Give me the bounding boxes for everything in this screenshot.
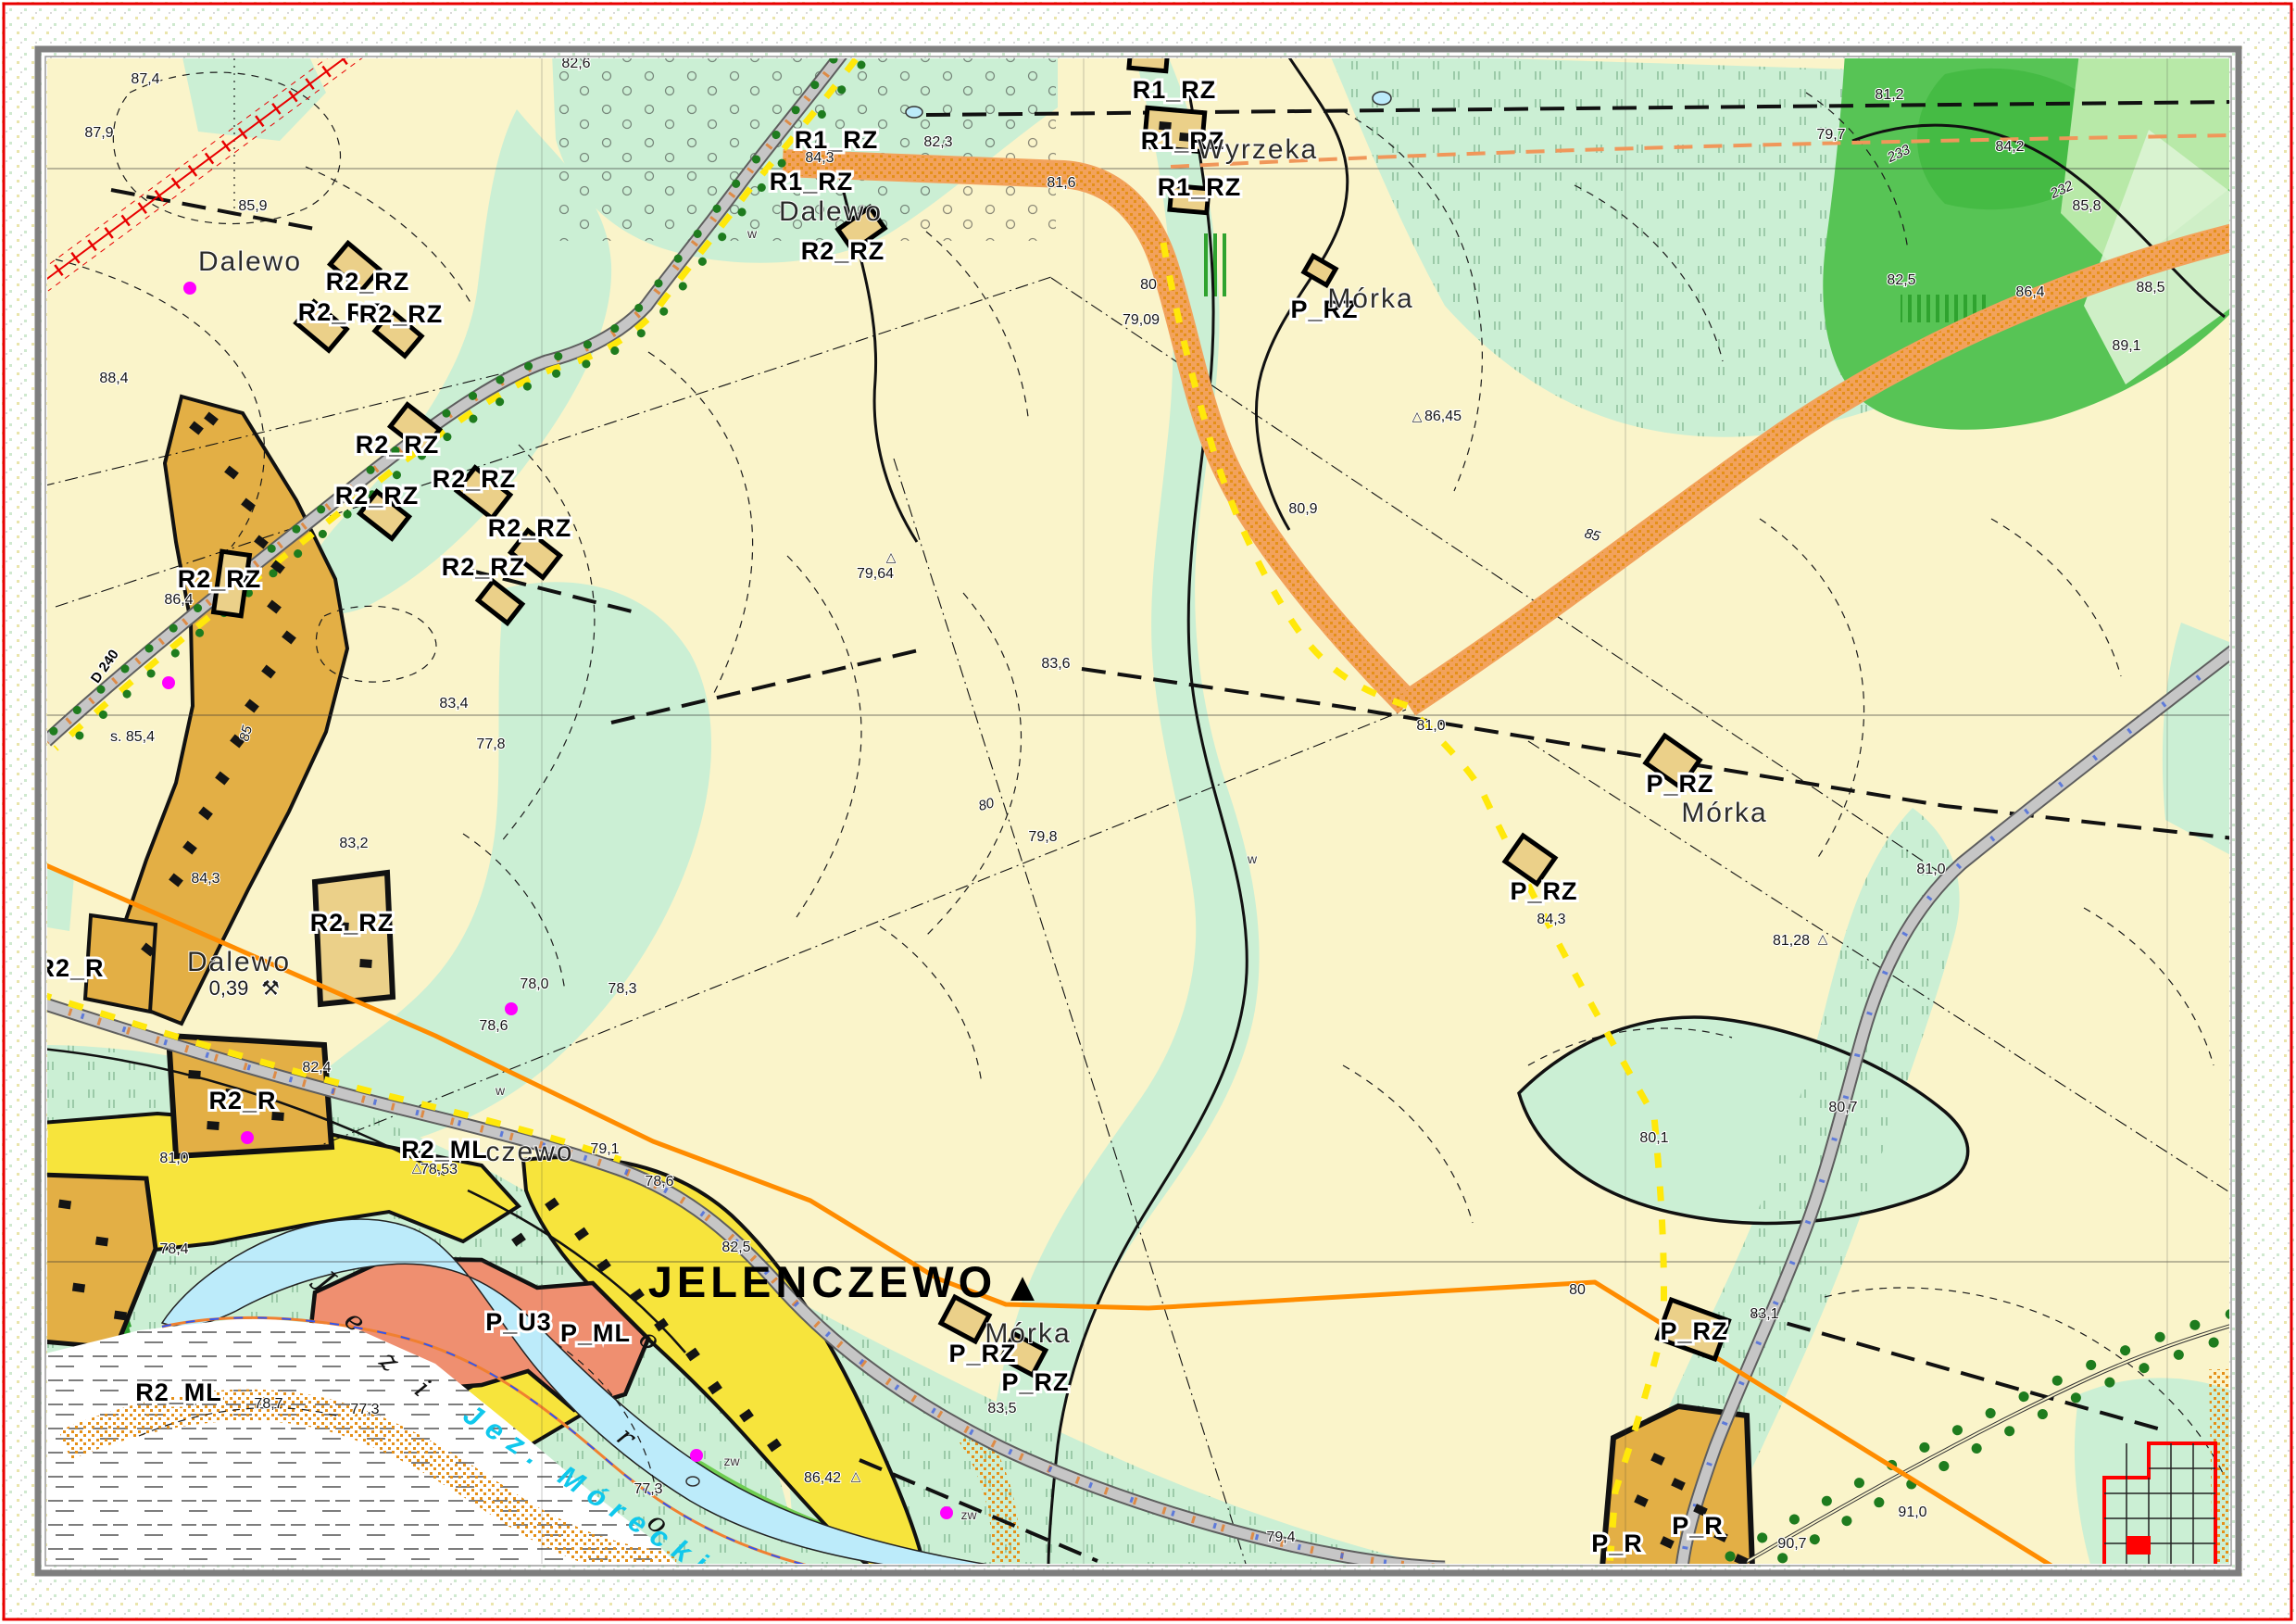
map-label: 79,1 [590, 1141, 619, 1157]
map-label: Wyrzeka [1198, 134, 1318, 165]
map-label: △ [1412, 409, 1423, 423]
map-label: 78,6 [645, 1174, 673, 1190]
building [58, 1200, 71, 1210]
map-label: 82,3 [923, 134, 952, 150]
map-label: △ [886, 549, 897, 564]
map-label: w [747, 226, 758, 241]
map-label: △ [1818, 931, 1828, 946]
building [207, 1121, 220, 1130]
map-label: 77,8 [476, 736, 505, 752]
map-label: 78,53 [420, 1162, 458, 1177]
map-label: 79,7 [1816, 127, 1845, 143]
map-label: 81,0 [159, 1151, 188, 1166]
map-label: 86,4 [2015, 284, 2044, 300]
building [188, 1070, 201, 1079]
map-viewport[interactable]: R1_RZR1_RZR1_RZR1_RZR1_RZR1_RZR1_RZR2_RZ… [0, 0, 2296, 1624]
map-label: 78,6 [479, 1018, 508, 1034]
map-label: R2_RZ [442, 553, 526, 581]
map-label: Dalewo [779, 196, 883, 227]
map-label: 83,1 [1750, 1306, 1778, 1322]
map-label: 80 [1569, 1282, 1586, 1298]
map-label: 80 [1140, 277, 1157, 293]
map-label: czewo [485, 1137, 573, 1167]
map-label: 78,3 [608, 981, 636, 997]
map-label: R2_RZ [356, 431, 440, 459]
map-label: 81,2 [1875, 87, 1903, 103]
map-label: R2_RZ [335, 482, 420, 510]
map-label: P_RZ [1510, 877, 1577, 905]
map-label: ▲ [1002, 1265, 1043, 1310]
map-label: 79,8 [1028, 829, 1057, 845]
map-label: 0,39 [209, 976, 249, 1000]
map-label: P_ML [560, 1319, 631, 1347]
map-label: 77,3 [634, 1481, 662, 1497]
map-label: 78,4 [159, 1241, 188, 1257]
map-label: P_R [1672, 1512, 1724, 1540]
map-label: 87,9 [84, 125, 113, 141]
map-label: △ [851, 1468, 861, 1483]
map-label: 84,2 [1995, 139, 2024, 155]
map-label: R2_RZ [488, 514, 572, 542]
map-label: 79,09 [1123, 312, 1160, 328]
map-label: P_RZ [1660, 1317, 1727, 1345]
building [95, 1237, 108, 1247]
map-label: JELENCZEWO [648, 1257, 997, 1306]
map-label: 86,4 [164, 592, 193, 608]
map-label: 83,6 [1041, 656, 1070, 672]
building [359, 959, 372, 968]
map-label: Mórka [985, 1318, 1071, 1349]
map-label: 84,3 [191, 871, 220, 887]
map-content: R1_RZR1_RZR1_RZR1_RZR1_RZR1_RZR1_RZR2_RZ… [0, 0, 2234, 1599]
map-label: 88,5 [2136, 280, 2164, 296]
map-label: Dalewo [198, 246, 302, 277]
map-label: 90,7 [1777, 1536, 1806, 1552]
map-label: R1_RZ [1158, 173, 1242, 201]
map-label: 82,4 [302, 1060, 331, 1076]
map-label: P_U3 [485, 1308, 552, 1336]
map-label: P_RZ [1001, 1368, 1069, 1396]
map-label: R1_RZ [1133, 76, 1217, 104]
map-label: 86,42 [804, 1470, 841, 1486]
map-label: R2_R [208, 1087, 276, 1114]
map-label: R2_RZ [178, 565, 262, 593]
map-label: 81,28 [1773, 933, 1810, 949]
map-label: 80,1 [1639, 1130, 1668, 1146]
map-label: 88,4 [99, 371, 128, 386]
map-label: R2_RZ [359, 300, 444, 328]
map-label: 84,3 [805, 150, 834, 166]
map-label: 80,9 [1288, 501, 1317, 517]
map-label: 77,3 [350, 1402, 379, 1417]
map-label: 85,9 [238, 198, 267, 214]
map-label: 82,5 [1887, 272, 1915, 288]
map-label: R2_ML [135, 1379, 222, 1406]
map-label: 91,0 [1898, 1504, 1926, 1520]
map-label: w [495, 1083, 506, 1098]
map-label: Mórka [1681, 798, 1767, 828]
map-label: zw [960, 1507, 977, 1522]
building [114, 1311, 127, 1321]
map-label: P_RZ [1646, 770, 1713, 798]
map-label: R2_RZ [310, 909, 395, 937]
map-label: R2_RZ [433, 465, 517, 493]
map-label: △ [412, 1160, 422, 1175]
map-label: 85,8 [2072, 198, 2101, 214]
map-label: 84,3 [1537, 912, 1565, 927]
map-label: P_R [1591, 1530, 1643, 1557]
map-label: 82,5 [721, 1240, 750, 1255]
map-label: 81,0 [1916, 862, 1945, 877]
map-label: 78,7 [254, 1396, 282, 1412]
map-label: 80,7 [1828, 1100, 1857, 1115]
map-label: 87,4 [131, 71, 159, 87]
map-label: 86,45 [1424, 409, 1462, 424]
map-label: 83,4 [439, 696, 468, 711]
map-label: R2_RZ [801, 237, 885, 265]
map-label: 78,0 [520, 976, 548, 992]
map-label: zw [723, 1454, 740, 1468]
map-label: 83,2 [339, 836, 368, 851]
map-label: 83,5 [987, 1401, 1016, 1416]
map-label: 79,64 [857, 566, 894, 582]
map-label: R2_RZ [326, 268, 410, 296]
map-label: 81,6 [1047, 175, 1075, 191]
building [72, 1283, 85, 1293]
map-label: 79,4 [1266, 1530, 1295, 1545]
zoning-map[interactable]: R1_RZR1_RZR1_RZR1_RZR1_RZR1_RZR1_RZR2_RZ… [0, 0, 2296, 1624]
map-label: ⚒ [261, 976, 280, 1000]
map-label: 81,0 [1416, 718, 1445, 734]
map-label: s. 85,4 [110, 729, 155, 745]
map-label: Mórka [1327, 283, 1413, 314]
map-label: R1_RZ [770, 168, 854, 195]
map-label: 89,1 [2112, 338, 2140, 354]
map-label: w [1247, 851, 1258, 866]
map-label: Dalewo [187, 947, 291, 977]
